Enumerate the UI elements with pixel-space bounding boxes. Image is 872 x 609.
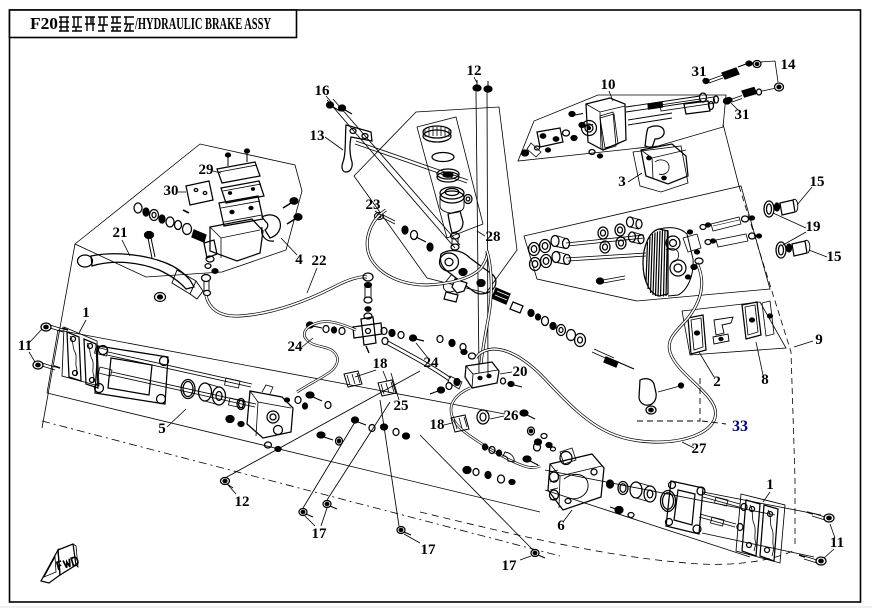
svg-text:31: 31 [692, 64, 707, 80]
svg-text:10: 10 [601, 77, 616, 93]
svg-text:15: 15 [827, 249, 842, 265]
svg-text:28: 28 [486, 229, 501, 245]
svg-text:18: 18 [430, 417, 445, 433]
svg-text:F20: F20 [30, 14, 58, 33]
svg-text:1: 1 [766, 477, 774, 493]
svg-text:1: 1 [82, 305, 90, 321]
svg-text:24: 24 [424, 355, 440, 371]
svg-text:18: 18 [373, 356, 388, 372]
svg-text:17: 17 [421, 542, 437, 558]
svg-text:14: 14 [781, 57, 797, 73]
svg-text:12: 12 [467, 63, 482, 79]
svg-text:5: 5 [158, 421, 166, 437]
svg-text:11: 11 [18, 338, 32, 354]
svg-text:20: 20 [513, 364, 528, 380]
svg-text:19: 19 [806, 219, 821, 235]
svg-text:13: 13 [310, 128, 325, 144]
svg-text:33: 33 [732, 418, 748, 435]
svg-text:27: 27 [692, 441, 708, 457]
svg-text:9: 9 [815, 332, 823, 348]
svg-text:3: 3 [618, 174, 626, 190]
svg-text:2: 2 [713, 374, 721, 390]
svg-text:16: 16 [315, 83, 331, 99]
svg-text:12: 12 [235, 494, 250, 510]
svg-text:29: 29 [199, 162, 214, 178]
svg-text:11: 11 [830, 535, 844, 551]
svg-text:22: 22 [312, 253, 327, 269]
svg-text:17: 17 [312, 526, 328, 542]
svg-text:26: 26 [504, 408, 520, 424]
svg-text:23: 23 [366, 197, 381, 213]
svg-text:30: 30 [164, 183, 179, 199]
svg-text:25: 25 [394, 398, 409, 414]
svg-text:17: 17 [502, 558, 518, 574]
svg-text:8: 8 [761, 372, 769, 388]
svg-text:24: 24 [288, 339, 304, 355]
svg-text:31: 31 [735, 107, 750, 123]
svg-text:/HYDRAULIC BRAKE ASSY: /HYDRAULIC BRAKE ASSY [134, 14, 271, 33]
svg-text:21: 21 [113, 225, 128, 241]
